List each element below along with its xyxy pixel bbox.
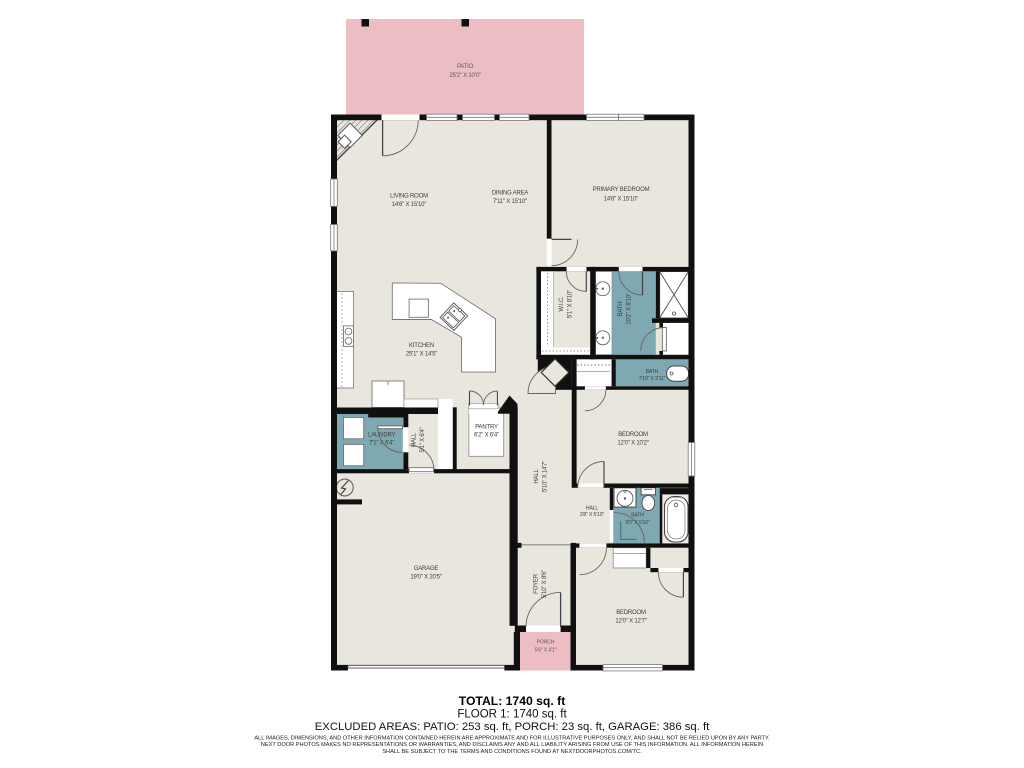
svg-text:EXCLUDED AREAS: PATIO: 253 sq.: EXCLUDED AREAS: PATIO: 253 sq. ft, PORCH… bbox=[315, 721, 710, 733]
svg-text:W.I.C.: W.I.C. bbox=[559, 296, 565, 312]
svg-text:BATH: BATH bbox=[646, 369, 659, 375]
svg-text:5'10" X 14'7": 5'10" X 14'7" bbox=[543, 461, 549, 492]
svg-text:BATH: BATH bbox=[618, 302, 624, 317]
svg-text:19'0" X 20'5": 19'0" X 20'5" bbox=[410, 575, 441, 581]
svg-text:PORCH: PORCH bbox=[537, 640, 555, 646]
svg-text:12'0" X 12'7": 12'0" X 12'7" bbox=[615, 618, 646, 624]
svg-text:HALL: HALL bbox=[412, 432, 418, 447]
svg-text:14'6" X 15'10": 14'6" X 15'10" bbox=[392, 202, 427, 208]
svg-text:TOTAL: 1740 sq. ft: TOTAL: 1740 sq. ft bbox=[459, 694, 566, 708]
svg-text:PATIO: PATIO bbox=[457, 64, 474, 70]
svg-text:10'2" X 8'10": 10'2" X 8'10" bbox=[627, 293, 633, 324]
svg-text:FLOOR 1: 1740 sq. ft: FLOOR 1: 1740 sq. ft bbox=[457, 708, 567, 720]
svg-text:BEDROOM: BEDROOM bbox=[616, 610, 646, 616]
svg-text:HALL: HALL bbox=[586, 505, 598, 511]
svg-text:BEDROOM: BEDROOM bbox=[618, 432, 648, 438]
svg-text:5'6" X 4'1": 5'6" X 4'1" bbox=[535, 647, 557, 653]
svg-text:NEXT DOOR PHOTOS MAKES NO REPR: NEXT DOOR PHOTOS MAKES NO REPRESENTATION… bbox=[261, 742, 763, 748]
svg-text:SHALL BE SUBJECT TO THE TERMS: SHALL BE SUBJECT TO THE TERMS AND CONDIT… bbox=[382, 749, 642, 755]
svg-text:14'8" X 15'10": 14'8" X 15'10" bbox=[604, 197, 639, 203]
svg-text:PANTRY: PANTRY bbox=[475, 425, 498, 431]
svg-text:25'2" X 10'0": 25'2" X 10'0" bbox=[449, 73, 480, 79]
svg-text:3'8" X 5'10": 3'8" X 5'10" bbox=[580, 512, 604, 518]
svg-text:GARAGE: GARAGE bbox=[414, 566, 439, 572]
svg-text:ALL IMAGES, DIMENSIONS, AND OT: ALL IMAGES, DIMENSIONS, AND OTHER INFORM… bbox=[254, 735, 770, 741]
svg-text:25'1" X 14'5": 25'1" X 14'5" bbox=[406, 352, 437, 358]
svg-text:DINING AREA: DINING AREA bbox=[492, 191, 529, 197]
svg-text:FOYER: FOYER bbox=[534, 573, 540, 594]
svg-text:9'0" X 5'10": 9'0" X 5'10" bbox=[625, 520, 649, 526]
svg-text:12'0" X 10'2": 12'0" X 10'2" bbox=[617, 440, 648, 446]
svg-text:6'2" X 6'4": 6'2" X 6'4" bbox=[474, 433, 499, 439]
svg-text:PRIMARY BEDROOM: PRIMARY BEDROOM bbox=[593, 187, 650, 193]
svg-text:5'10" X 8'6": 5'10" X 8'6" bbox=[542, 570, 548, 598]
svg-text:5'1" X 6'4": 5'1" X 6'4" bbox=[420, 427, 426, 452]
svg-text:7'11" X 15'10": 7'11" X 15'10" bbox=[493, 199, 527, 205]
svg-text:LAUNDRY: LAUNDRY bbox=[368, 432, 395, 438]
svg-text:7'10" X 2'11": 7'10" X 2'11" bbox=[639, 376, 666, 382]
svg-text:KITCHEN: KITCHEN bbox=[409, 343, 434, 349]
svg-text:BATH: BATH bbox=[631, 512, 644, 518]
svg-text:HALL: HALL bbox=[534, 469, 540, 484]
svg-text:5'1" X 8'10": 5'1" X 8'10" bbox=[568, 290, 574, 318]
svg-text:LIVING ROOM: LIVING ROOM bbox=[390, 193, 428, 199]
